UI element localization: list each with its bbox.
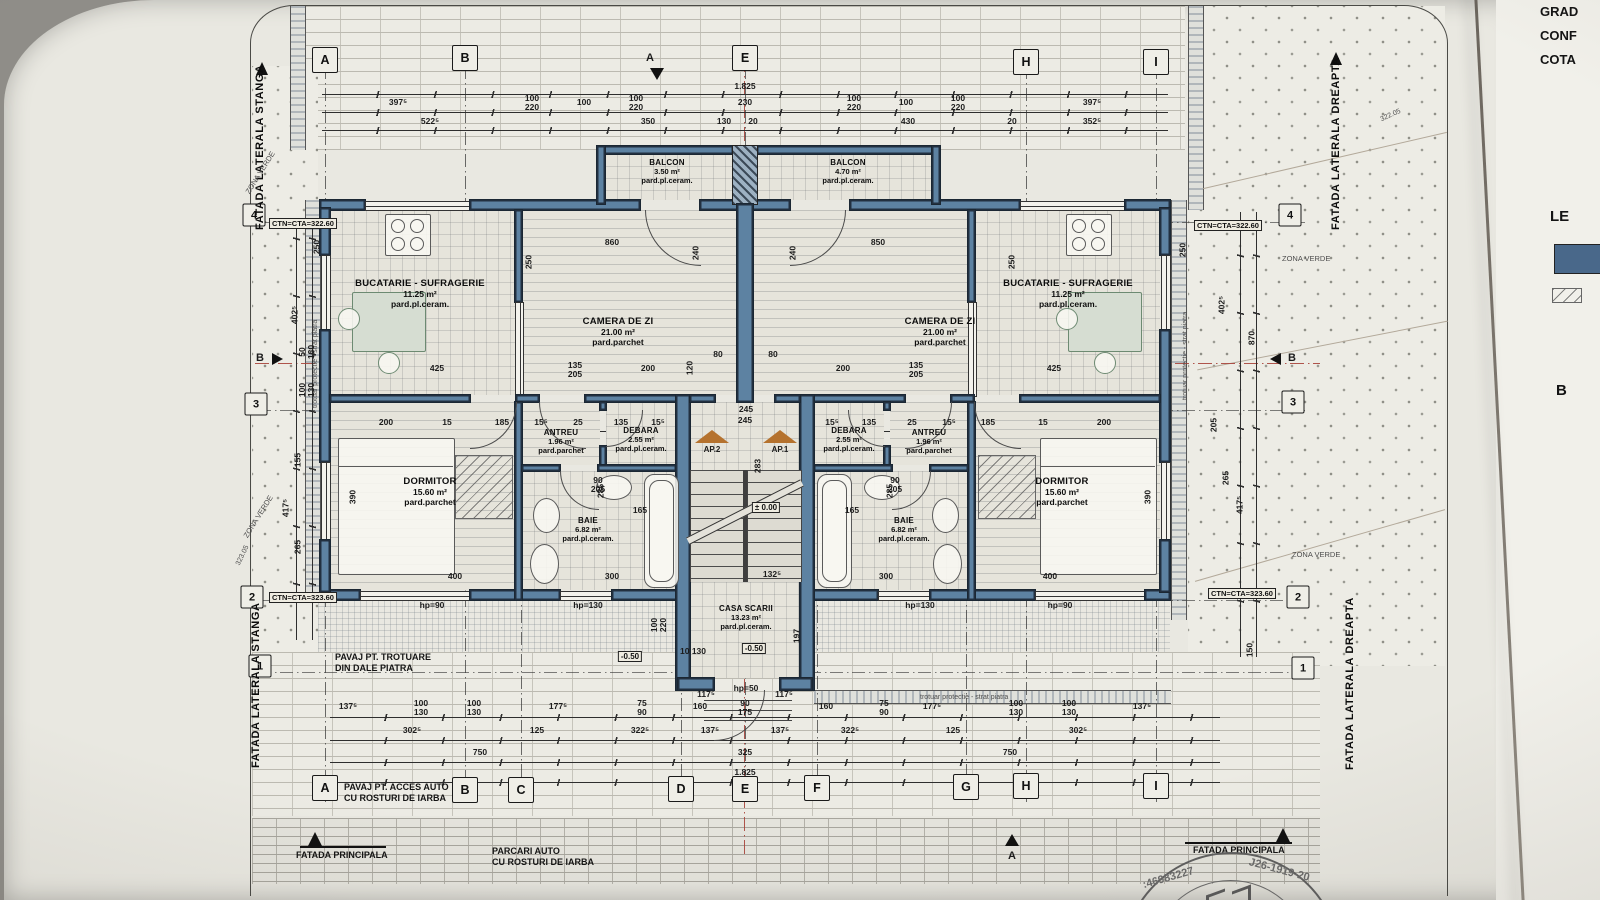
burner-icon bbox=[391, 237, 405, 251]
wall bbox=[1160, 540, 1170, 592]
dim: 402⁵ bbox=[291, 306, 300, 324]
dim: 177⁵ bbox=[549, 702, 567, 711]
dim: 850 bbox=[871, 238, 885, 247]
burner-icon bbox=[1091, 219, 1105, 233]
grid-right-4: 4 bbox=[1279, 204, 1302, 227]
dim: 245 bbox=[739, 405, 753, 414]
dim: 100 130 bbox=[414, 699, 428, 718]
dim: 1.825 bbox=[734, 768, 755, 777]
bidet-icon bbox=[932, 498, 959, 533]
toilet-icon bbox=[933, 544, 962, 584]
room-label-hall-right: ANTREU1.96 m²pard.parchet bbox=[906, 428, 951, 455]
wall bbox=[330, 395, 470, 402]
dim: 15⁵ bbox=[942, 418, 955, 427]
bidet-icon bbox=[533, 498, 560, 533]
dim: 283 bbox=[754, 459, 763, 473]
wall bbox=[968, 210, 975, 302]
legend-swatch-wall bbox=[1554, 244, 1600, 274]
room-living-right bbox=[753, 210, 968, 395]
dim: 135 205 bbox=[568, 361, 582, 380]
dim: 165 bbox=[845, 506, 859, 515]
grid-top-I: I bbox=[1143, 49, 1169, 75]
pavaj-trotuare-label: PAVAJ PT. TROTUARE DIN DALE PIATRA bbox=[335, 652, 431, 675]
dim: 750 bbox=[473, 748, 487, 757]
facade-right-top-label: FATADA LATERALA DREAPTA bbox=[1330, 70, 1342, 230]
dim: 15 bbox=[442, 418, 451, 427]
dim: 130 bbox=[717, 117, 731, 126]
adjacent-text-cota: COTA bbox=[1540, 52, 1576, 68]
dim: 265 bbox=[1222, 471, 1231, 485]
trotuar-protectie-label: trotuar protectie - strat piatra bbox=[1182, 312, 1189, 400]
dim: 302⁵ bbox=[1069, 726, 1087, 735]
dim: 100 130 bbox=[1062, 699, 1076, 718]
dim: 250 bbox=[313, 240, 322, 254]
room-label-bedroom-left: DORMITOR15.60 m²pard.parchet bbox=[403, 476, 456, 507]
adjacent-sheet bbox=[1496, 0, 1600, 900]
room-label-storage-right: DEBARA2.55 m²pard.pl.ceram. bbox=[823, 426, 874, 453]
dim: 397⁵ bbox=[1083, 98, 1101, 107]
section-a-bottom-label: A bbox=[1008, 850, 1016, 862]
interior-glazing bbox=[515, 302, 524, 397]
dim: hp=90 bbox=[420, 601, 445, 610]
wall bbox=[515, 210, 522, 302]
wall bbox=[612, 590, 678, 600]
section-b-left-arrow-icon bbox=[272, 353, 283, 365]
room-label-bedroom-right: DORMITOR15.60 m²pard.parchet bbox=[1035, 476, 1088, 507]
grid-bottom-E: E bbox=[732, 776, 758, 802]
burner-icon bbox=[1091, 237, 1105, 251]
dim: 80 bbox=[713, 350, 722, 359]
dim: 185 bbox=[981, 418, 995, 427]
dim: 160 bbox=[819, 702, 833, 711]
wall bbox=[930, 465, 968, 471]
dim: 350 bbox=[641, 117, 655, 126]
zona-verde-label: ZONA VERDE bbox=[1282, 254, 1330, 263]
grid-top-H: H bbox=[1013, 49, 1039, 75]
dim: 125 bbox=[530, 726, 544, 735]
room-label-bath-right: BAIE6.82 m²pard.pl.ceram. bbox=[878, 516, 929, 543]
dim: 25 bbox=[573, 418, 582, 427]
grid-bottom-G: G bbox=[953, 774, 979, 800]
dim: 80 bbox=[768, 350, 777, 359]
wall bbox=[807, 395, 905, 402]
ap2-arrow-icon bbox=[695, 430, 729, 443]
dim: 522⁵ bbox=[421, 117, 439, 126]
dim: 155 bbox=[294, 453, 303, 467]
dim-line bbox=[330, 759, 1220, 766]
dim: 400 bbox=[448, 572, 462, 581]
dim: 245 bbox=[738, 416, 752, 425]
wall bbox=[1020, 395, 1160, 402]
room-label-staircase: CASA SCARII13.23 m²pard.pl.ceram. bbox=[719, 604, 773, 631]
dim: 200 bbox=[379, 418, 393, 427]
pavaj-acces-label: PAVAJ PT. ACCES AUTO CU ROSTURI DE IARBA bbox=[344, 782, 449, 805]
burner-icon bbox=[410, 237, 424, 251]
room-label-balcony-right: BALCON4.70 m²pard.pl.ceram. bbox=[822, 158, 873, 185]
wall bbox=[598, 465, 676, 471]
toilet-icon bbox=[530, 544, 559, 584]
dim: 100 bbox=[899, 98, 913, 107]
grid-bottom-I: I bbox=[1143, 773, 1169, 799]
window bbox=[1161, 255, 1171, 332]
wall bbox=[968, 402, 975, 600]
section-b-left-label: B bbox=[256, 352, 264, 364]
dim: hp=130 bbox=[573, 601, 603, 610]
dim: 135 bbox=[862, 418, 876, 427]
wall bbox=[320, 330, 330, 462]
facade-principala-left-label: FATADA PRINCIPALA bbox=[296, 850, 388, 861]
dim: 125 bbox=[946, 726, 960, 735]
dim: 197 bbox=[793, 629, 802, 643]
dim: 132⁵ bbox=[763, 570, 781, 579]
dim: 75 90 bbox=[879, 699, 888, 718]
dim: 185 bbox=[495, 418, 509, 427]
dim: 137⁵ bbox=[771, 726, 789, 735]
level-minus: -0.50 bbox=[618, 651, 642, 662]
section-a-top-label: A bbox=[646, 52, 654, 64]
section-a-bottom-arrow-icon bbox=[1005, 834, 1019, 846]
dim: 400 bbox=[1043, 572, 1057, 581]
dim: 137⁵ bbox=[1133, 702, 1151, 711]
section-b-right-arrow-icon bbox=[1270, 353, 1281, 365]
burner-icon bbox=[1072, 219, 1086, 233]
wall bbox=[690, 395, 715, 402]
wall bbox=[775, 395, 800, 402]
dim: 322⁵ bbox=[631, 726, 649, 735]
dim: 150 bbox=[1246, 643, 1255, 657]
dim: 90 175 bbox=[738, 699, 752, 718]
dim: 300 bbox=[879, 572, 893, 581]
grid-bottom-B: B bbox=[452, 777, 478, 803]
dim: 100 220 bbox=[650, 618, 668, 632]
adjacent-text-conf: CONF bbox=[1540, 28, 1577, 44]
room-label-kitchen-right: BUCATARIE - SUFRAGERIE11.25 m²pard.pl.ce… bbox=[1003, 278, 1133, 309]
wardrobe-icon bbox=[455, 455, 513, 519]
center-pier bbox=[733, 146, 757, 204]
window bbox=[365, 201, 472, 211]
grid-bottom-D: D bbox=[668, 776, 694, 802]
dim: 265 bbox=[294, 540, 303, 554]
window bbox=[321, 255, 331, 332]
wall bbox=[1160, 330, 1170, 462]
dim: 390 bbox=[1144, 490, 1153, 504]
room-label-living-right: CAMERA DE ZI21.00 m²pard.parchet bbox=[905, 316, 976, 347]
dim: hp=90 bbox=[1048, 601, 1073, 610]
window bbox=[1161, 462, 1171, 542]
ap2-label: AP.2 bbox=[704, 446, 721, 455]
room-label-balcony-left: BALCON3.50 m²pard.pl.ceram. bbox=[641, 158, 692, 185]
chair-icon bbox=[378, 352, 400, 374]
stair-rail bbox=[743, 470, 747, 582]
dim: 100 220 bbox=[525, 94, 539, 113]
room-living-left bbox=[522, 210, 737, 395]
room-label-kitchen-left: BUCATARIE - SUFRAGERIE11.25 m²pard.pl.ce… bbox=[355, 278, 485, 309]
room-label-living-left: CAMERA DE ZI21.00 m²pard.parchet bbox=[583, 316, 654, 347]
ctn-label: CTN=CTA=323.60 bbox=[269, 592, 337, 603]
window bbox=[360, 591, 472, 601]
dim: 397⁵ bbox=[389, 98, 407, 107]
ap1-arrow-icon bbox=[763, 430, 797, 443]
dim: 302⁵ bbox=[403, 726, 421, 735]
bed-pillow-line bbox=[1040, 466, 1155, 467]
grid-left-3: 3 bbox=[245, 393, 268, 416]
adjacent-b-label: B bbox=[1556, 382, 1567, 401]
room-label-bath-left: BAIE6.82 m²pard.pl.ceram. bbox=[562, 516, 613, 543]
facade-right-bottom-label: FATADA LATERALA DREAPTA bbox=[1344, 600, 1356, 770]
dim: 205 bbox=[1210, 418, 1219, 432]
grid-top-E: E bbox=[732, 45, 758, 71]
ctn-label: CTN=CTA=322.60 bbox=[1194, 220, 1262, 231]
dim: 25 bbox=[907, 418, 916, 427]
facade-underline bbox=[300, 846, 386, 848]
section-a-top-arrow-icon bbox=[650, 68, 664, 80]
dim: 430 bbox=[901, 117, 915, 126]
wall bbox=[585, 395, 683, 402]
balcony-parapet bbox=[597, 146, 605, 204]
dim: 860 bbox=[605, 238, 619, 247]
legend-swatch-hatch bbox=[1552, 288, 1582, 303]
wall bbox=[1160, 208, 1170, 255]
dim: 50 130 bbox=[298, 345, 316, 359]
dim: 100 130 bbox=[298, 383, 316, 397]
dim: 322⁵ bbox=[841, 726, 859, 735]
grid-right-1: 1 bbox=[1292, 657, 1315, 680]
bathtub-inner bbox=[649, 480, 674, 582]
dim: 100 220 bbox=[951, 94, 965, 113]
wall bbox=[515, 402, 522, 600]
dim: 250 bbox=[525, 255, 534, 269]
wardrobe-icon bbox=[978, 455, 1036, 519]
dim: 177⁵ bbox=[923, 702, 941, 711]
facade-arrow-icon bbox=[1276, 828, 1290, 842]
room-label-storage-left: DEBARA2.55 m²pard.pl.ceram. bbox=[615, 426, 666, 453]
stair-wall-east bbox=[800, 395, 814, 690]
party-wall bbox=[737, 204, 753, 402]
grid-right-2: 2 bbox=[1287, 586, 1310, 609]
grid-right-3: 3 bbox=[1282, 391, 1305, 414]
facade-arrow-icon bbox=[308, 832, 322, 846]
dim: 250 bbox=[1008, 255, 1017, 269]
step bbox=[704, 720, 792, 721]
dim: 117⁵ bbox=[775, 690, 793, 699]
dim: hp=50 bbox=[734, 684, 759, 693]
dim: 240 bbox=[692, 246, 701, 260]
burner-icon bbox=[391, 219, 405, 233]
wall bbox=[930, 590, 1035, 600]
dim: 250 bbox=[1179, 243, 1188, 257]
dim: 417⁵ bbox=[1236, 496, 1245, 514]
parcari-label: PARCARI AUTO CU ROSTURI DE IARBA bbox=[492, 846, 594, 869]
dim: 200 bbox=[641, 364, 655, 373]
chair-icon bbox=[338, 308, 360, 330]
dim: 870 bbox=[1248, 331, 1257, 345]
dim: 75 90 bbox=[637, 699, 646, 718]
grid-bottom-H: H bbox=[1013, 773, 1039, 799]
dim-line-v bbox=[309, 225, 316, 640]
dim: 15⁵ bbox=[534, 418, 547, 427]
grid-bottom-C: C bbox=[508, 777, 534, 803]
grid-bottom-A: A bbox=[312, 775, 338, 801]
adjacent-legend-label: LE bbox=[1550, 208, 1569, 227]
dim: 200 bbox=[1097, 418, 1111, 427]
grid-top-B: B bbox=[452, 45, 478, 71]
balcony-parapet bbox=[757, 146, 940, 154]
dim-line bbox=[322, 127, 1168, 134]
level-zero: ± 0.00 bbox=[752, 502, 780, 513]
dim: 325 bbox=[738, 748, 752, 757]
dim: 200 bbox=[836, 364, 850, 373]
chair-icon bbox=[1094, 352, 1116, 374]
dim: 165 bbox=[633, 506, 647, 515]
facade-underline bbox=[1185, 842, 1292, 844]
dim: 15⁵ bbox=[651, 418, 664, 427]
grid-bottom-F: F bbox=[804, 775, 830, 801]
dim: 285 bbox=[597, 484, 606, 498]
balcony-parapet bbox=[932, 146, 940, 204]
ctn-label: CTN=CTA=323.60 bbox=[1208, 588, 1276, 599]
dim: 100 bbox=[577, 98, 591, 107]
wall bbox=[470, 200, 640, 210]
dim: 135 bbox=[614, 418, 628, 427]
dim: 10 130 bbox=[680, 647, 706, 656]
dim: 100 130 bbox=[1009, 699, 1023, 718]
trotuar-protectie-label: trotuar protectie - strat piatra bbox=[920, 694, 1008, 701]
chair-icon bbox=[1056, 308, 1078, 330]
dim: 750 bbox=[1003, 748, 1017, 757]
wall bbox=[814, 465, 892, 471]
ap1-label: AP.1 bbox=[772, 446, 789, 455]
burner-icon bbox=[1072, 237, 1086, 251]
dim: 100 220 bbox=[847, 94, 861, 113]
window bbox=[1020, 201, 1127, 211]
dim-line bbox=[322, 109, 1168, 116]
grid-top-A: A bbox=[312, 47, 338, 73]
facade-left-bottom-label: FATADA LATERALA STANGA bbox=[250, 608, 262, 768]
dim: 100 220 bbox=[629, 94, 643, 113]
dim: 300 bbox=[605, 572, 619, 581]
balcony-parapet bbox=[597, 146, 733, 154]
dim: 425 bbox=[430, 364, 444, 373]
wall bbox=[812, 590, 878, 600]
dim: 1.825 bbox=[734, 82, 755, 91]
dim: 137⁵ bbox=[339, 702, 357, 711]
dim-line bbox=[330, 737, 1220, 744]
dim: 120 bbox=[686, 361, 695, 375]
wall bbox=[600, 402, 606, 410]
dim: 402⁵ bbox=[1218, 296, 1227, 314]
room-label-hall-left: ANTREU1.96 m²pard.parchet bbox=[538, 428, 583, 455]
dim: 240 bbox=[789, 246, 798, 260]
dim: 425 bbox=[1047, 364, 1061, 373]
ctn-label: CTN=CTA=322.60 bbox=[269, 218, 337, 229]
bathtub-inner bbox=[822, 480, 847, 582]
dim: 230 bbox=[738, 98, 752, 107]
level-minus: -0.50 bbox=[742, 643, 766, 654]
dim: 160 bbox=[693, 702, 707, 711]
dim: 352⁵ bbox=[1083, 117, 1101, 126]
wall bbox=[516, 395, 539, 402]
dim: 100 130 bbox=[467, 699, 481, 718]
dim: 135 205 bbox=[909, 361, 923, 380]
dim-line-v bbox=[293, 225, 300, 640]
blueprint-photo: 322.05 323.05 bbox=[0, 0, 1600, 900]
dim: 285 bbox=[886, 484, 895, 498]
dim: 117⁵ bbox=[697, 690, 715, 699]
adjacent-text-grad: GRAD bbox=[1540, 4, 1578, 20]
burner-icon bbox=[410, 219, 424, 233]
dim: hp=130 bbox=[905, 601, 935, 610]
zona-verde-label: ZONA VERDE bbox=[1292, 550, 1340, 559]
wall bbox=[884, 402, 890, 410]
dim: 15 bbox=[1038, 418, 1047, 427]
section-b-right-label: B bbox=[1288, 352, 1296, 364]
wall bbox=[320, 540, 330, 592]
dim: 417⁵ bbox=[282, 499, 291, 517]
wall bbox=[522, 465, 560, 471]
dim: 15⁵ bbox=[825, 418, 838, 427]
dim: 390 bbox=[349, 490, 358, 504]
dim: 20 bbox=[748, 117, 757, 126]
dim: 137⁵ bbox=[701, 726, 719, 735]
bed-pillow-line bbox=[338, 466, 453, 467]
dim: 20 bbox=[1007, 117, 1016, 126]
window bbox=[321, 462, 331, 542]
wall bbox=[951, 395, 974, 402]
